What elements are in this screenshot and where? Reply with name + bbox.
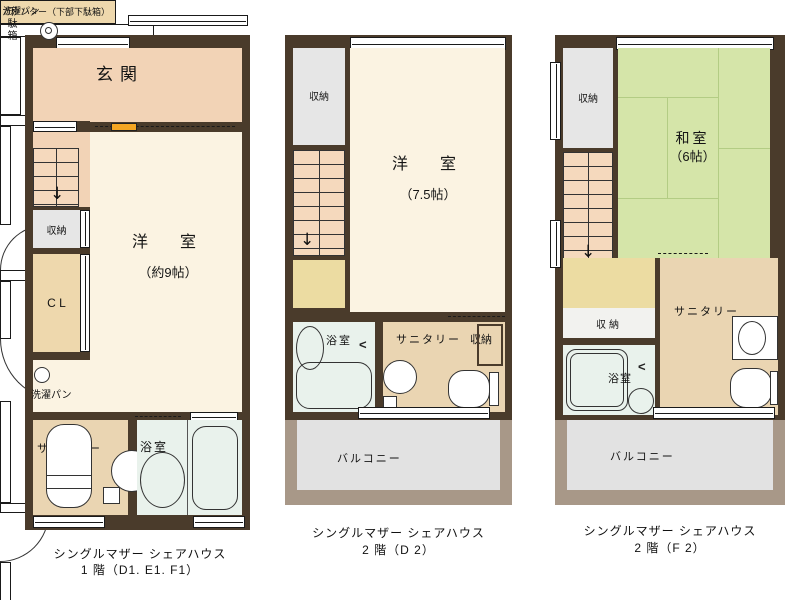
opening-dashed-line — [135, 416, 181, 417]
drain-inner — [45, 27, 52, 34]
toilet-icon — [730, 368, 772, 408]
stair-direction-arrow: ↓ — [300, 232, 314, 249]
toilet-icon — [46, 424, 92, 508]
folding-door — [0, 562, 11, 600]
laundry-pan-drain-icon — [40, 22, 58, 40]
laundry-pan-label: 洗濯パン — [31, 386, 72, 401]
bathtub-icon — [296, 362, 372, 409]
bathroom-divider — [187, 420, 188, 515]
window — [128, 15, 248, 26]
toilet-seat-line — [46, 475, 92, 489]
plan-1f-caption-line1: シングルマザー シェアハウス — [30, 545, 250, 562]
wall-stub — [77, 121, 90, 132]
tatami-line — [618, 97, 719, 98]
folding-door — [0, 281, 11, 339]
window — [33, 121, 77, 132]
window — [33, 516, 105, 528]
room-japanese-size-label: （6帖） — [640, 146, 745, 165]
sink-bowl — [738, 321, 766, 355]
wash-area-icon — [140, 452, 185, 508]
stair-landing — [293, 260, 345, 308]
room-western-label: 洋 室 — [358, 150, 498, 174]
storage-label: 収納 — [293, 88, 345, 103]
window — [193, 516, 245, 528]
room-western-size-label: （約9帖） — [98, 262, 238, 281]
stair-direction-arrow: ↓ — [50, 186, 64, 203]
balcony-label: バルコニー — [337, 450, 402, 466]
room-japanese-label: 和室 — [640, 128, 745, 148]
balcony-label: バルコニー — [610, 448, 675, 464]
window — [550, 220, 561, 268]
room-western-label: 洋 室 — [98, 228, 238, 252]
plan-2f-d2-caption-line2: 2 階（D 2） — [285, 541, 512, 558]
sanitary-label: サニタリー — [396, 331, 461, 347]
laundry-pan-icon — [34, 367, 50, 383]
opening-dashed-line — [658, 253, 708, 254]
window — [550, 62, 561, 140]
shoe-box: 下駄箱 — [0, 37, 21, 115]
storage-label: 収納 — [563, 90, 613, 105]
plan-2f-f2-caption-line1: シングルマザー シェアハウス — [555, 522, 785, 539]
sink-icon — [383, 360, 417, 394]
plan-2f-f2-caption-line2: 2 階（F 2） — [555, 539, 785, 556]
room-entrance-label: 玄関 — [96, 60, 144, 85]
sink-cabinet-icon — [103, 487, 120, 504]
folding-door-mark: < — [638, 360, 646, 373]
wash-area-icon — [628, 388, 654, 414]
plan-2f-d2-caption-line1: シングルマザー シェアハウス — [285, 524, 512, 541]
floor-plan-sheet: カウンター（下部下駄箱） 玄関 下駄箱 ↓ 洋 室 （約9帖） 収納 C L 洗… — [0, 0, 800, 600]
tatami-line — [618, 198, 719, 199]
plan-1f-caption-line2: 1 階（D1. E1. F1） — [30, 561, 250, 578]
bathroom-label: 浴室 — [326, 332, 352, 348]
sliding-door — [80, 254, 90, 352]
sink-icon — [732, 316, 778, 360]
laundry-pan-label: 洗濯パン — [3, 4, 39, 17]
opening-dashed-line — [448, 316, 505, 317]
entrance-step-marker — [111, 123, 137, 131]
room-western — [350, 48, 505, 312]
toilet-icon — [448, 370, 490, 408]
room-western-size-label: （7.5帖） — [358, 184, 498, 203]
balcony-sliding-door — [358, 407, 490, 419]
folding-door — [0, 126, 11, 225]
hallway — [563, 258, 655, 308]
storage-label: 収納 — [33, 222, 80, 237]
bathroom-label: 浴室 — [608, 370, 632, 386]
toilet-tank-icon — [489, 372, 499, 406]
sanitary-storage-box — [477, 324, 503, 366]
hall-storage-label: 収納 — [563, 316, 655, 331]
folding-door — [0, 401, 11, 503]
folding-door-mark: < — [359, 338, 367, 351]
toilet-tank-icon — [770, 371, 778, 405]
sanitary-label: サニタリー — [674, 303, 739, 319]
sliding-door — [80, 210, 90, 248]
balcony-sliding-door — [653, 407, 775, 419]
bathtub-icon — [192, 426, 238, 510]
closet-cl-label: C L — [33, 296, 80, 310]
